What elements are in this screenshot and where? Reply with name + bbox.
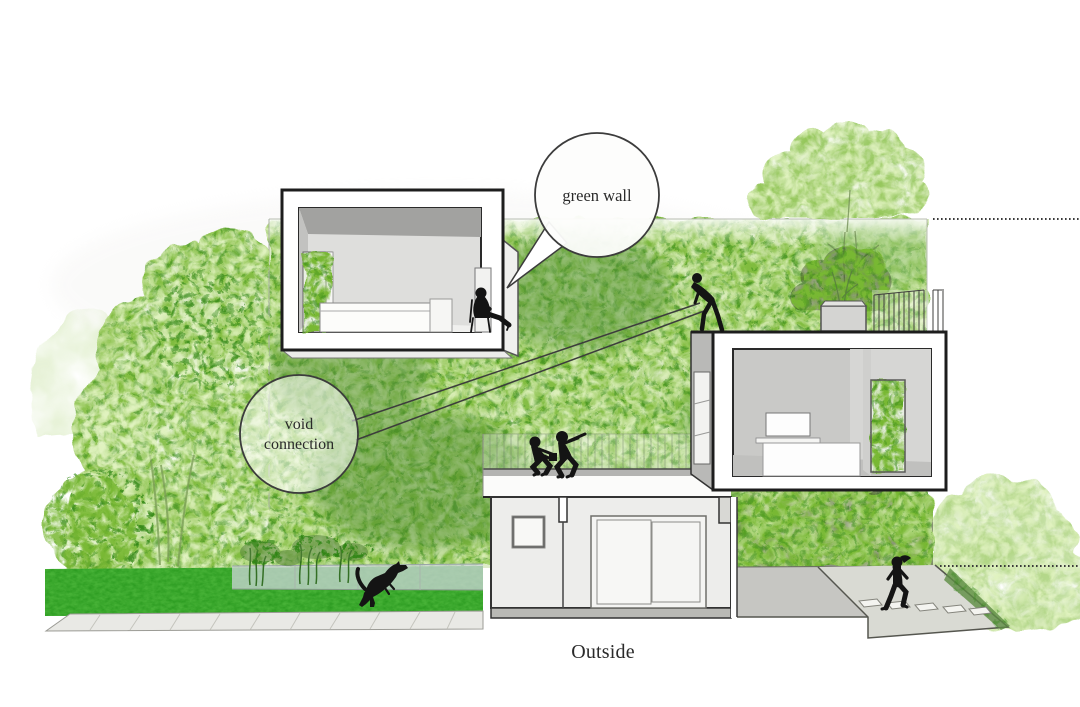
svg-text:green wall: green wall [562,186,632,205]
svg-text:connection: connection [264,436,334,453]
svg-text:void: void [285,416,313,433]
svg-text:Outside: Outside [571,641,635,663]
